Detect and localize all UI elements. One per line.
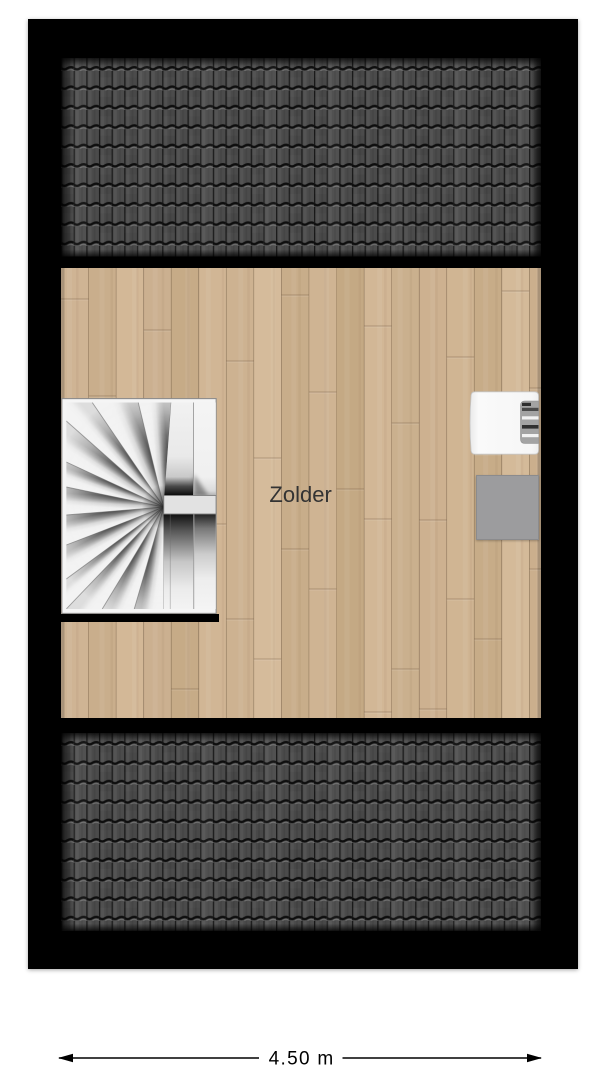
svg-text:4.50 m: 4.50 m bbox=[268, 1049, 334, 1070]
